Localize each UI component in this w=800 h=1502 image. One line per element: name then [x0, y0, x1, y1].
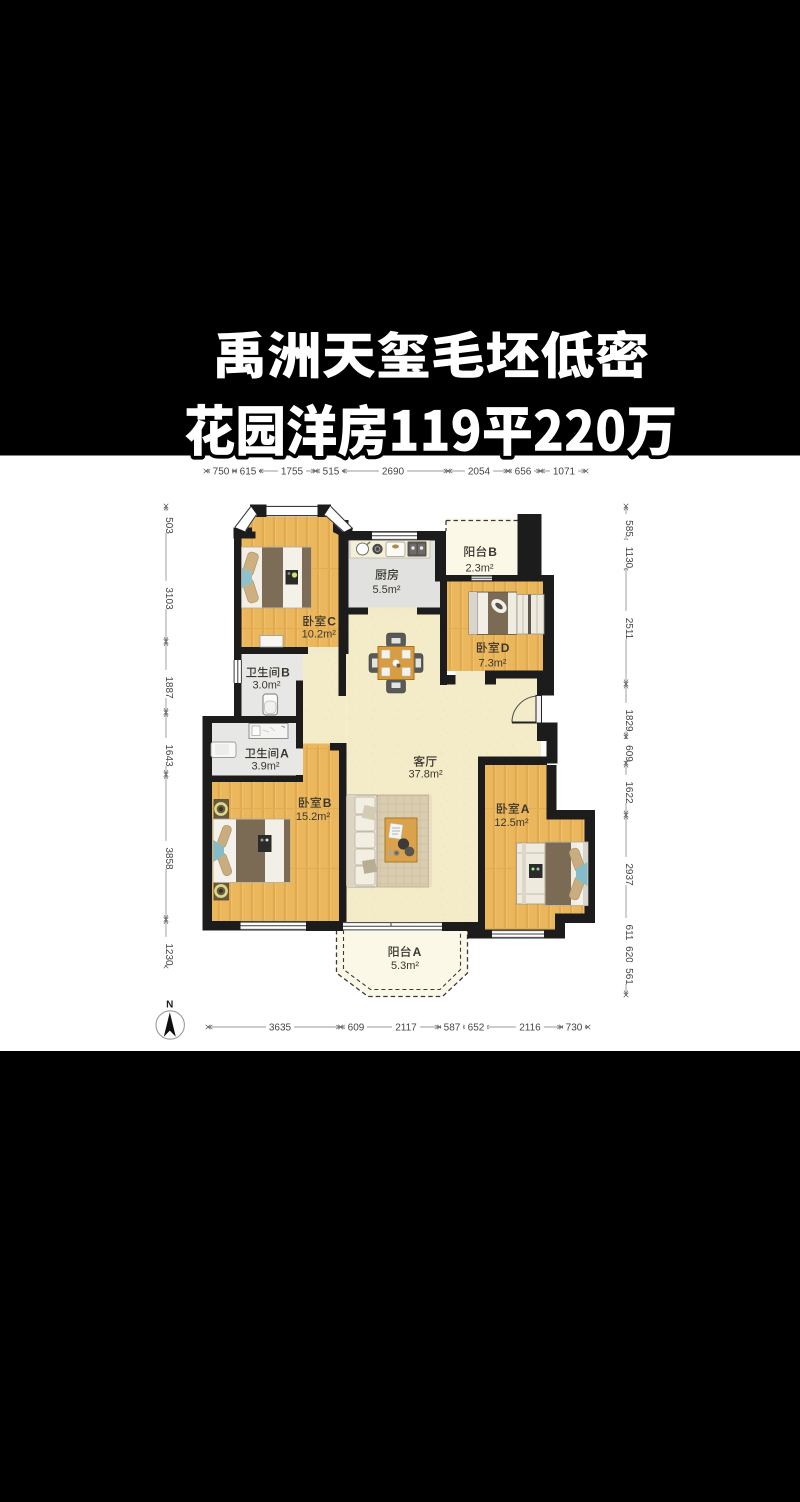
svg-text:C: C [327, 615, 336, 629]
svg-text:10.2m²: 10.2m² [302, 629, 337, 641]
svg-text:3.0m²: 3.0m² [252, 680, 280, 692]
svg-text:652: 652 [468, 1023, 485, 1034]
svg-text:5.5m²: 5.5m² [372, 584, 400, 596]
svg-text:730: 730 [566, 1023, 583, 1034]
svg-text:15.2m²: 15.2m² [296, 811, 331, 823]
svg-text:N: N [166, 1000, 173, 1011]
svg-text:A: A [521, 802, 530, 816]
svg-text:615: 615 [240, 467, 257, 478]
svg-text:609: 609 [623, 745, 634, 762]
svg-text:3103: 3103 [163, 587, 174, 610]
svg-text:503: 503 [163, 517, 174, 534]
svg-text:37.8m²: 37.8m² [408, 769, 443, 781]
svg-text:1887: 1887 [163, 676, 174, 699]
svg-text:A: A [280, 747, 289, 761]
svg-text:1130: 1130 [623, 547, 634, 569]
svg-text:2054: 2054 [468, 467, 491, 478]
svg-text:B: B [281, 666, 290, 680]
svg-text:2117: 2117 [395, 1023, 417, 1034]
svg-text:7.3m²: 7.3m² [478, 658, 506, 670]
svg-text:1755: 1755 [281, 467, 304, 478]
svg-text:1622: 1622 [623, 781, 634, 804]
svg-text:587: 587 [444, 1023, 461, 1034]
svg-text:B: B [488, 545, 497, 559]
svg-text:2690: 2690 [382, 467, 405, 478]
svg-text:A: A [413, 945, 422, 959]
svg-text:3.9m²: 3.9m² [251, 761, 279, 773]
svg-text:609: 609 [348, 1023, 365, 1034]
svg-text:620: 620 [623, 946, 634, 963]
svg-text:750: 750 [213, 467, 230, 478]
svg-text:12.5m²: 12.5m² [494, 817, 529, 829]
svg-text:611: 611 [623, 925, 634, 941]
svg-text:1071: 1071 [553, 467, 576, 478]
svg-text:2116: 2116 [519, 1023, 541, 1034]
svg-text:2937: 2937 [623, 863, 634, 886]
svg-text:5.3m²: 5.3m² [391, 960, 419, 972]
svg-text:515: 515 [323, 467, 340, 478]
svg-text:656: 656 [515, 467, 532, 478]
svg-text:2511: 2511 [623, 618, 634, 640]
svg-text:D: D [501, 641, 510, 655]
svg-text:1230: 1230 [163, 943, 174, 966]
svg-text:3858: 3858 [163, 847, 174, 870]
svg-text:585: 585 [623, 520, 634, 537]
svg-text:2.3m²: 2.3m² [465, 563, 493, 575]
svg-text:1643: 1643 [163, 744, 174, 767]
svg-text:561: 561 [623, 968, 634, 985]
svg-text:3635: 3635 [269, 1023, 292, 1034]
svg-text:1829: 1829 [623, 709, 634, 732]
svg-text:B: B [323, 796, 332, 810]
